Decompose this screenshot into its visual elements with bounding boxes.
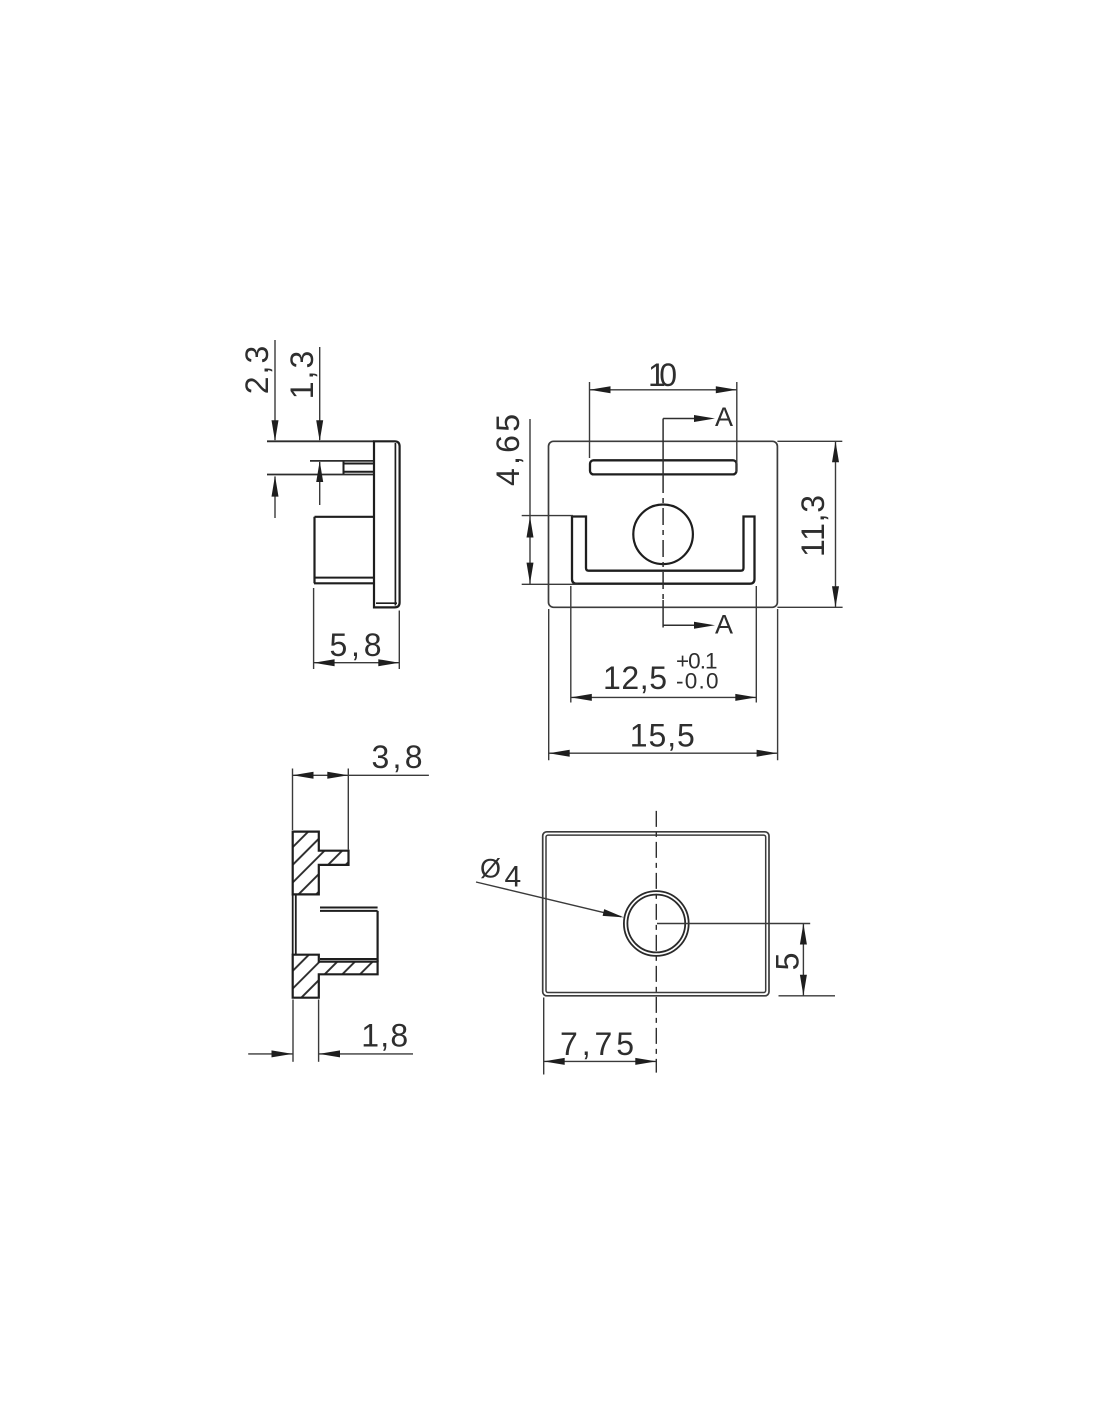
svg-text:A: A (715, 402, 733, 432)
svg-text:1,3: 1,3 (284, 349, 320, 399)
svg-text:5,8: 5,8 (330, 627, 384, 663)
svg-text:A: A (715, 610, 733, 640)
svg-text:10: 10 (648, 357, 679, 393)
svg-text:11,3: 11,3 (795, 493, 831, 557)
svg-text:4: 4 (505, 861, 522, 894)
svg-text:4,65: 4,65 (490, 412, 526, 486)
svg-text:2,3: 2,3 (239, 344, 275, 394)
svg-text:Ø: Ø (480, 854, 501, 884)
svg-text:1,8: 1,8 (361, 1018, 410, 1054)
svg-text:3,8: 3,8 (372, 739, 425, 775)
svg-text:12,5: 12,5 (603, 660, 669, 696)
svg-text:15,5: 15,5 (630, 717, 697, 753)
svg-text:-0.0: -0.0 (676, 669, 719, 694)
svg-text:7,75: 7,75 (560, 1026, 636, 1062)
svg-text:5: 5 (770, 951, 806, 971)
